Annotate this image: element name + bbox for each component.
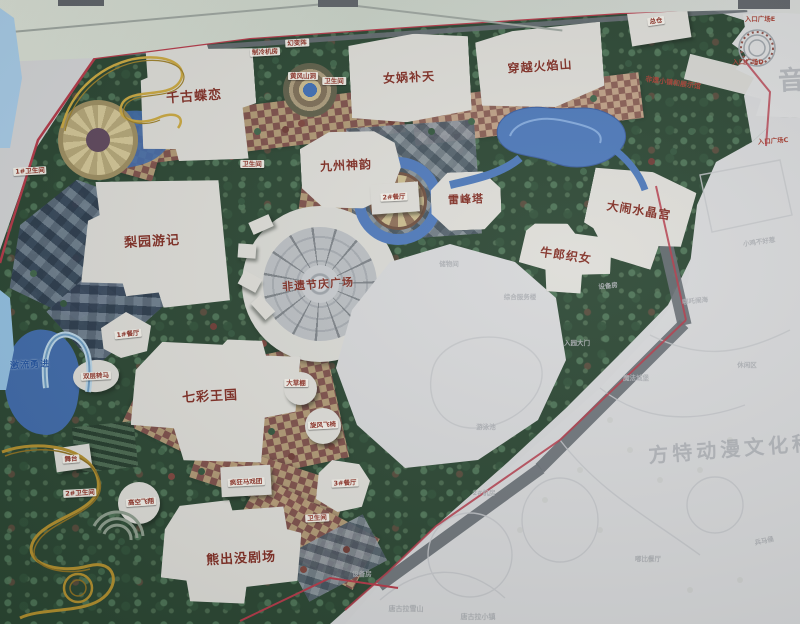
park-map-photo: 方特动漫文化科技 音 千古蝶恋女娲补天穿越火焰山九州神韵雷峰塔大闹水晶宫牛郎织女… xyxy=(0,0,800,624)
shebeifang-1-label: 设备房 xyxy=(598,279,618,291)
tanggula-xueshan-label: 唐古拉雪山 xyxy=(389,604,424,614)
dubi-canting-label: 嘟比餐厅 xyxy=(635,553,661,563)
zonghe-fuwulou-label: 综合服务楼 xyxy=(504,291,537,301)
xiuxianqu-label: 休闲区 xyxy=(737,359,757,369)
labels-faint: 储物间综合服务楼入园大门设备房哪吒闹海小鸡不好惹休闲区魔法城堡2#机房设备房游泳… xyxy=(0,0,800,624)
tanggula-xiaozhen-label: 唐古拉小镇 xyxy=(461,612,496,622)
nezha-naohai-label: 哪吒闹海 xyxy=(682,294,709,307)
mofa-chengbao-label: 魔法城堡 xyxy=(623,372,649,382)
chuwujian-label: 储物间 xyxy=(439,258,459,268)
jifang-2-label: 2#机房 xyxy=(473,487,496,497)
youyongchi-label: 游泳池 xyxy=(476,421,496,431)
bingmayong-label: 兵马俑 xyxy=(753,533,774,547)
shebeifang-2-label: 设备房 xyxy=(352,568,372,578)
ruyuan-damen-label: 入园大门 xyxy=(564,337,590,347)
xiaoji-buhaore-label: 小鸡不好惹 xyxy=(742,234,776,248)
